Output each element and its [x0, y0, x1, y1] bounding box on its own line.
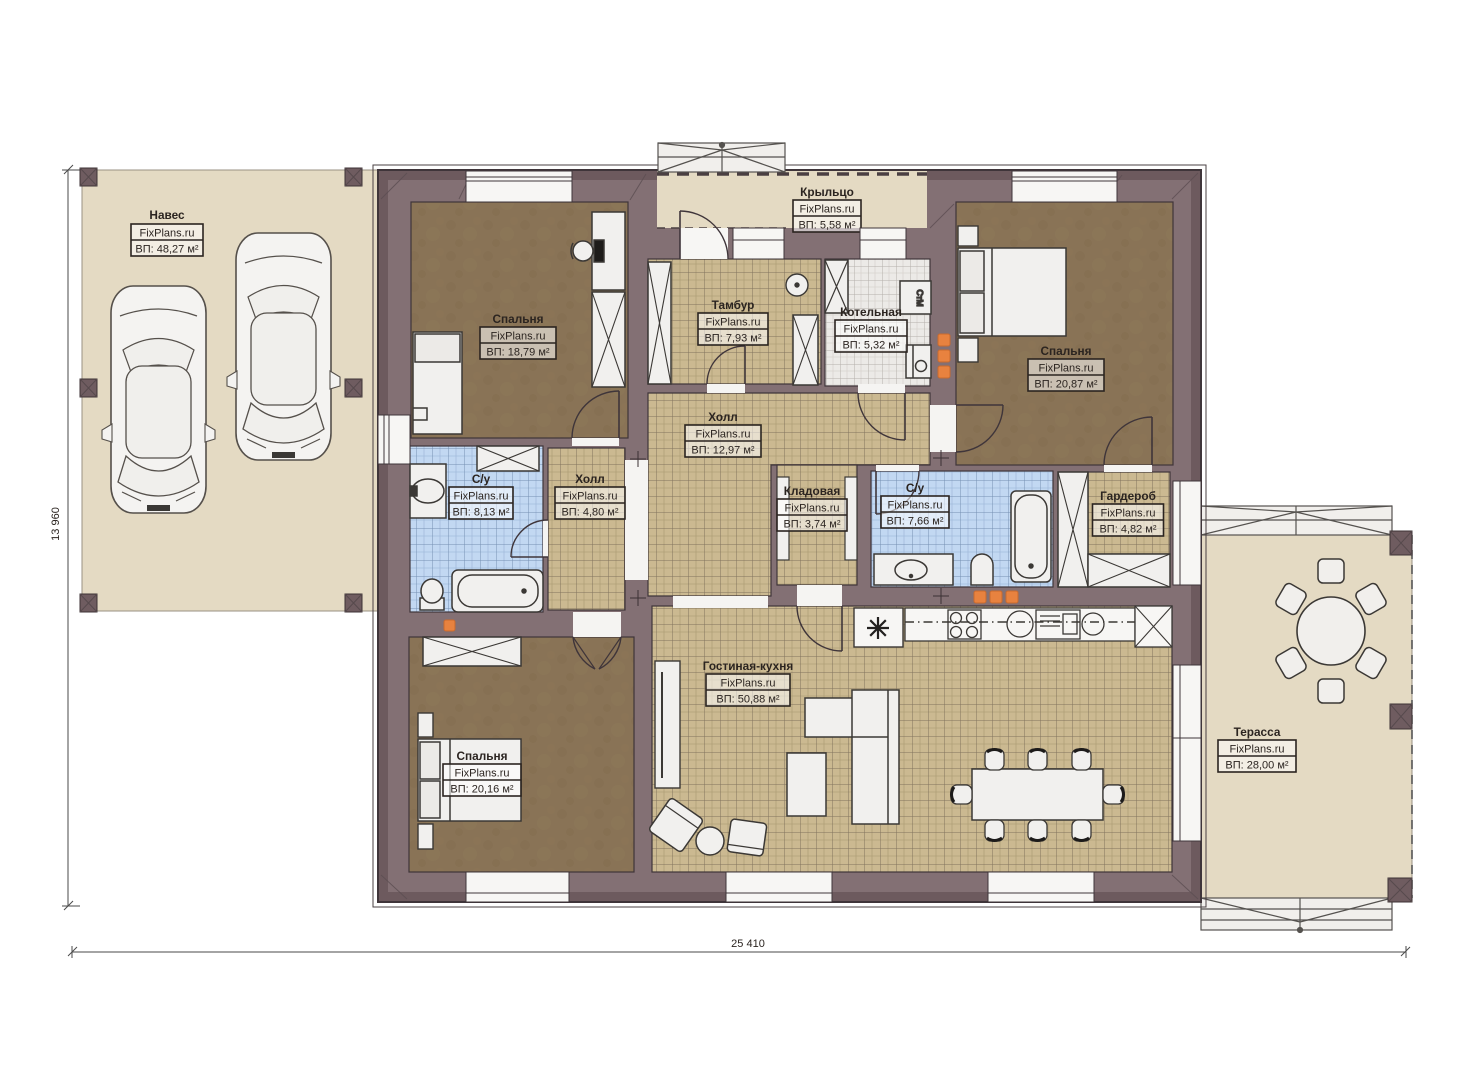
svg-text:FixPlans.ru: FixPlans.ru [490, 331, 545, 343]
svg-text:Спальня: Спальня [457, 749, 508, 763]
svg-text:ВП: 50,88 м²: ВП: 50,88 м² [716, 694, 780, 706]
svg-text:Тамбур: Тамбур [712, 298, 755, 312]
svg-text:ВП: 20,16 м²: ВП: 20,16 м² [450, 784, 514, 796]
svg-text:FixPlans.ru: FixPlans.ru [139, 228, 194, 240]
svg-text:FixPlans.ru: FixPlans.ru [562, 491, 617, 503]
svg-text:Холл: Холл [708, 410, 738, 424]
svg-text:С/у: С/у [472, 472, 491, 486]
svg-text:Гардероб: Гардероб [1100, 489, 1156, 503]
svg-text:13 960: 13 960 [50, 507, 62, 541]
svg-text:ВП: 48,27 м²: ВП: 48,27 м² [135, 244, 199, 256]
svg-text:ВП: 20,87 м²: ВП: 20,87 м² [1034, 379, 1098, 391]
svg-text:Котельная: Котельная [840, 305, 902, 319]
svg-text:С/у: С/у [906, 481, 925, 495]
svg-text:Кладовая: Кладовая [784, 484, 841, 498]
svg-text:ВП: 18,79 м²: ВП: 18,79 м² [486, 347, 550, 359]
svg-text:ВП: 5,58 м²: ВП: 5,58 м² [798, 220, 855, 232]
svg-text:FixPlans.ru: FixPlans.ru [705, 317, 760, 329]
svg-text:25 410: 25 410 [731, 938, 765, 950]
svg-text:FixPlans.ru: FixPlans.ru [843, 324, 898, 336]
svg-text:ВП: 4,80 м²: ВП: 4,80 м² [561, 507, 618, 519]
svg-text:ВП: 28,00 м²: ВП: 28,00 м² [1225, 760, 1289, 772]
svg-text:FixPlans.ru: FixPlans.ru [1038, 363, 1093, 375]
svg-text:FixPlans.ru: FixPlans.ru [695, 429, 750, 441]
svg-text:FixPlans.ru: FixPlans.ru [887, 500, 942, 512]
svg-text:Спальня: Спальня [1041, 344, 1092, 358]
svg-text:ВП: 4,82 м²: ВП: 4,82 м² [1099, 524, 1156, 536]
svg-text:Навес: Навес [149, 208, 185, 222]
svg-text:FixPlans.ru: FixPlans.ru [1229, 744, 1284, 756]
svg-text:FixPlans.ru: FixPlans.ru [1100, 508, 1155, 520]
svg-text:ВП: 8,13 м²: ВП: 8,13 м² [452, 507, 509, 519]
svg-text:FixPlans.ru: FixPlans.ru [453, 491, 508, 503]
svg-text:ВП: 7,93 м²: ВП: 7,93 м² [704, 333, 761, 345]
svg-text:FixPlans.ru: FixPlans.ru [784, 503, 839, 515]
svg-text:Холл: Холл [575, 472, 605, 486]
svg-text:Спальня: Спальня [493, 312, 544, 326]
svg-text:СтМ: СтМ [915, 289, 925, 306]
svg-text:Гостиная-кухня: Гостиная-кухня [703, 659, 794, 673]
svg-text:ВП: 7,66 м²: ВП: 7,66 м² [886, 516, 943, 528]
svg-text:ВП: 12,97 м²: ВП: 12,97 м² [691, 445, 755, 457]
svg-text:FixPlans.ru: FixPlans.ru [454, 768, 509, 780]
svg-text:ВП: 3,74 м²: ВП: 3,74 м² [783, 519, 840, 531]
svg-text:ВП: 5,32 м²: ВП: 5,32 м² [842, 340, 899, 352]
svg-text:FixPlans.ru: FixPlans.ru [720, 678, 775, 690]
svg-text:Крыльцо: Крыльцо [800, 185, 854, 199]
svg-text:Терасса: Терасса [1234, 725, 1281, 739]
svg-text:FixPlans.ru: FixPlans.ru [799, 204, 854, 216]
